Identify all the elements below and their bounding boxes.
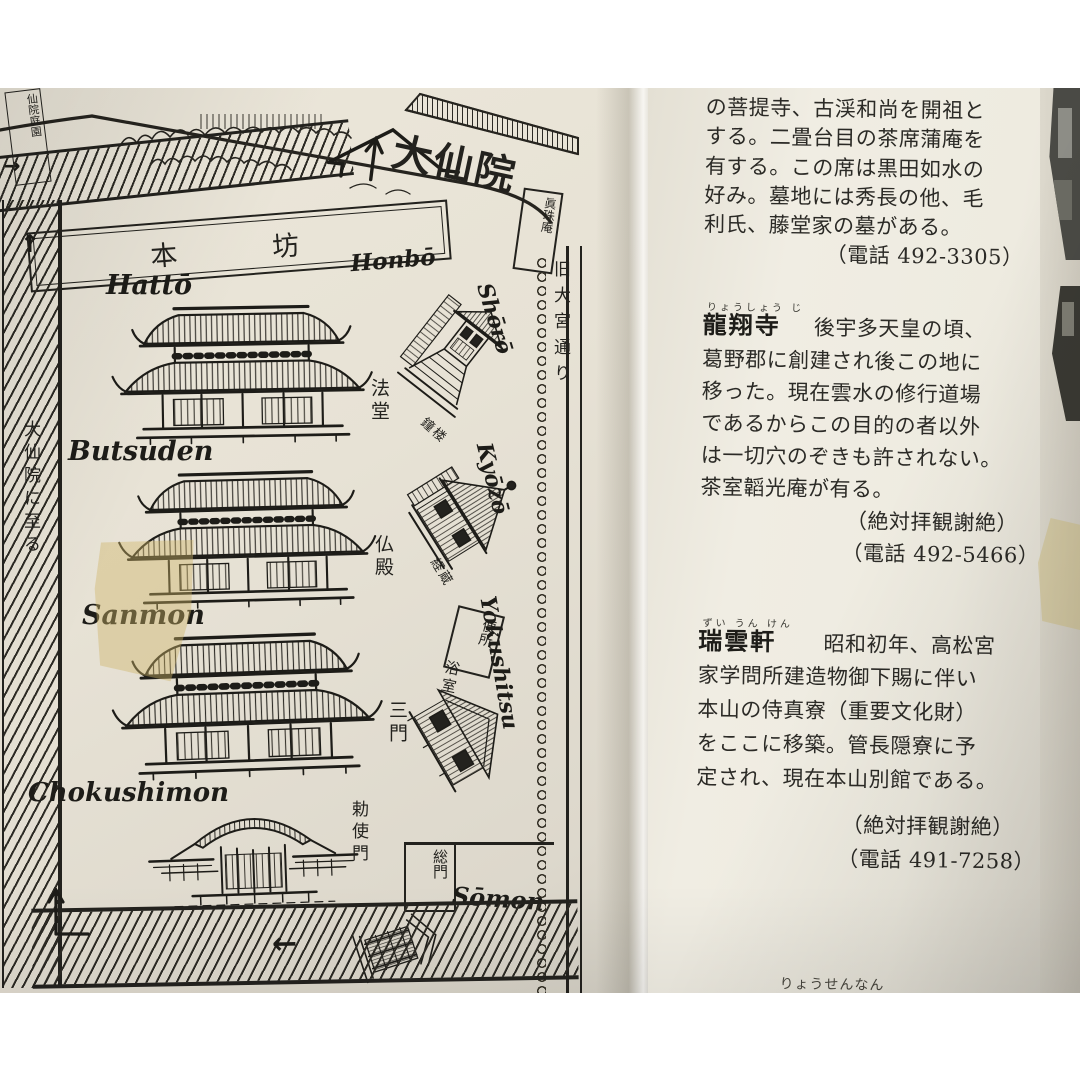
text-line: 好み。墓地には秀長の他、毛 — [704, 182, 984, 212]
shoro-drawing — [376, 268, 537, 438]
somon-kanji: 総門 — [431, 849, 449, 879]
butsuden-kanji: 仏殿 — [370, 534, 397, 580]
text-line: であるからこの目的の者以外 — [701, 410, 981, 440]
text-line: 茶室韜光庵が有る。 — [700, 474, 894, 503]
entry-name: 龍翔寺 — [702, 310, 780, 340]
phone-line: （電話 492-5466） — [841, 540, 1039, 569]
text-line: 葛野郡に創建され後この地に — [702, 346, 982, 376]
phone-line: （電話 491-7258） — [837, 846, 1035, 875]
text-line: 利氏、藤堂家の墓がある。 — [704, 211, 962, 241]
left-road: ↑ 大仙院に至る — [2, 200, 62, 988]
text-line: 本山の侍真寮（重要文化財） — [697, 696, 977, 726]
edge-photo-detail — [1058, 108, 1072, 158]
text-line: の菩提寺、古渓和尚を開祖と — [706, 94, 986, 124]
entry-name: 瑞雲軒 — [698, 626, 776, 656]
kyozo-drawing — [391, 437, 547, 589]
phone-line: （電話 492-3305） — [826, 242, 1024, 271]
map-page: 仙院庭園 → 大仙院 本坊 Honbō — [0, 88, 648, 993]
text-line: 有する。この席は黒田如水の — [705, 153, 985, 183]
entry-heading: 瑞雲軒 昭和初年、高松宮 — [698, 628, 996, 659]
to-daisenin-label: 大仙院に至る — [18, 420, 43, 558]
shinjuan-label: 眞珠庵 — [539, 196, 558, 234]
map-right-border — [566, 246, 582, 993]
text-line: は一切穴のぞきも許されない。 — [701, 442, 1002, 472]
text-line: 移った。現在雲水の修行道場 — [702, 378, 982, 408]
text-line: 家学問所建造物御下賜に伴い — [698, 662, 978, 692]
garden-label: 仙院庭園 — [25, 92, 43, 137]
entry-first-line: 後宇多天皇の頃、 — [814, 316, 986, 342]
text-line: する。二畳台目の茶席蒲庵を — [705, 123, 985, 153]
bottom-road: ← — [31, 899, 578, 989]
text-line: をここに移築。管長隠寮に予 — [697, 730, 977, 760]
note-line: （絶対拝観謝絶） — [846, 508, 1018, 536]
text-line: 定され、現在本山別館である。 — [696, 764, 997, 794]
text-column: の菩提寺、古渓和尚を開祖と する。二畳台目の茶席蒲庵を 有する。この席は黒田如水… — [687, 88, 1060, 993]
edge-photo-detail — [1062, 302, 1074, 336]
entry-heading: 龍翔寺 後宇多天皇の頃、 — [702, 312, 986, 343]
book-photo-page: 仙院庭園 → 大仙院 本坊 Honbō — [0, 0, 1080, 1080]
corner-arrow-icon — [34, 880, 106, 940]
chokushimon-kanji: 勅使門 — [346, 800, 371, 866]
footer-furigana: りょうせんなん — [779, 973, 884, 993]
hatto-drawing — [91, 283, 394, 450]
note-line: （絶対拝観謝絶） — [842, 812, 1014, 840]
left-arrow-icon: ← — [272, 926, 298, 961]
street-tree-line — [534, 256, 546, 993]
photo-area: 仙院庭園 → 大仙院 本坊 Honbō — [0, 88, 1080, 993]
entry-first-line: 昭和初年、高松宮 — [823, 632, 995, 658]
up-arrow-icon: ↑ — [20, 230, 40, 258]
honbo-romaji: Honbō — [349, 244, 436, 278]
